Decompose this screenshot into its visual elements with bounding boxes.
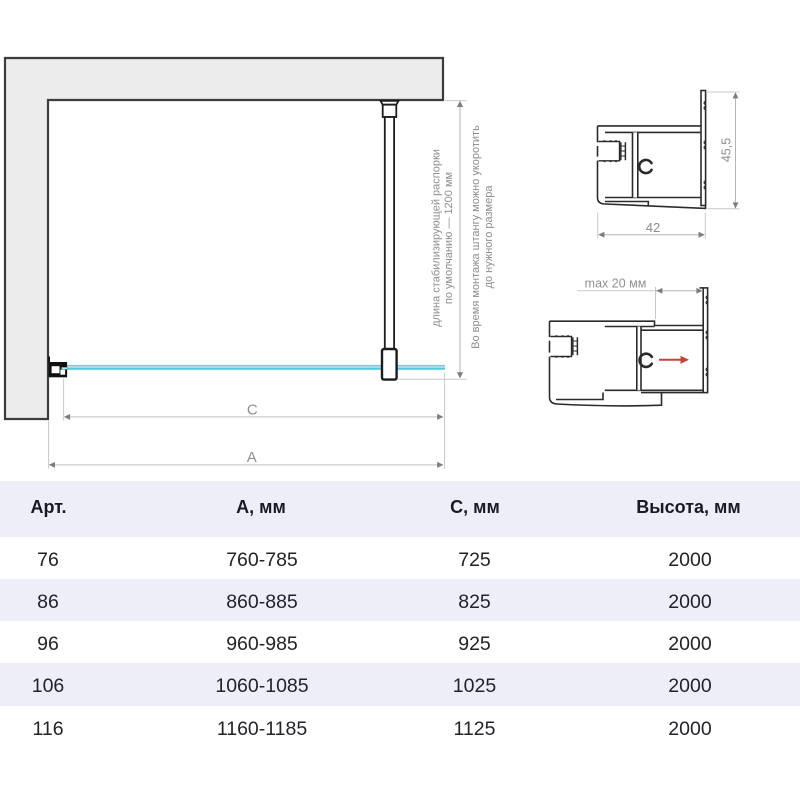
svg-text:42: 42: [646, 220, 660, 235]
svg-text:Во время монтажа штангу можно: Во время монтажа штангу можно укоротить: [470, 125, 482, 349]
svg-text:C: C: [247, 402, 258, 419]
svg-text:длина стабилизирующей распорки: длина стабилизирующей распорки: [431, 149, 443, 327]
svg-text:A: A: [247, 449, 257, 466]
svg-text:по умолчанию — 1200 мм: по умолчанию — 1200 мм: [443, 172, 455, 304]
svg-text:max 20 мм: max 20 мм: [585, 277, 647, 291]
svg-text:45,5: 45,5: [720, 138, 734, 162]
svg-text:до нужного размера: до нужного размера: [483, 185, 495, 289]
